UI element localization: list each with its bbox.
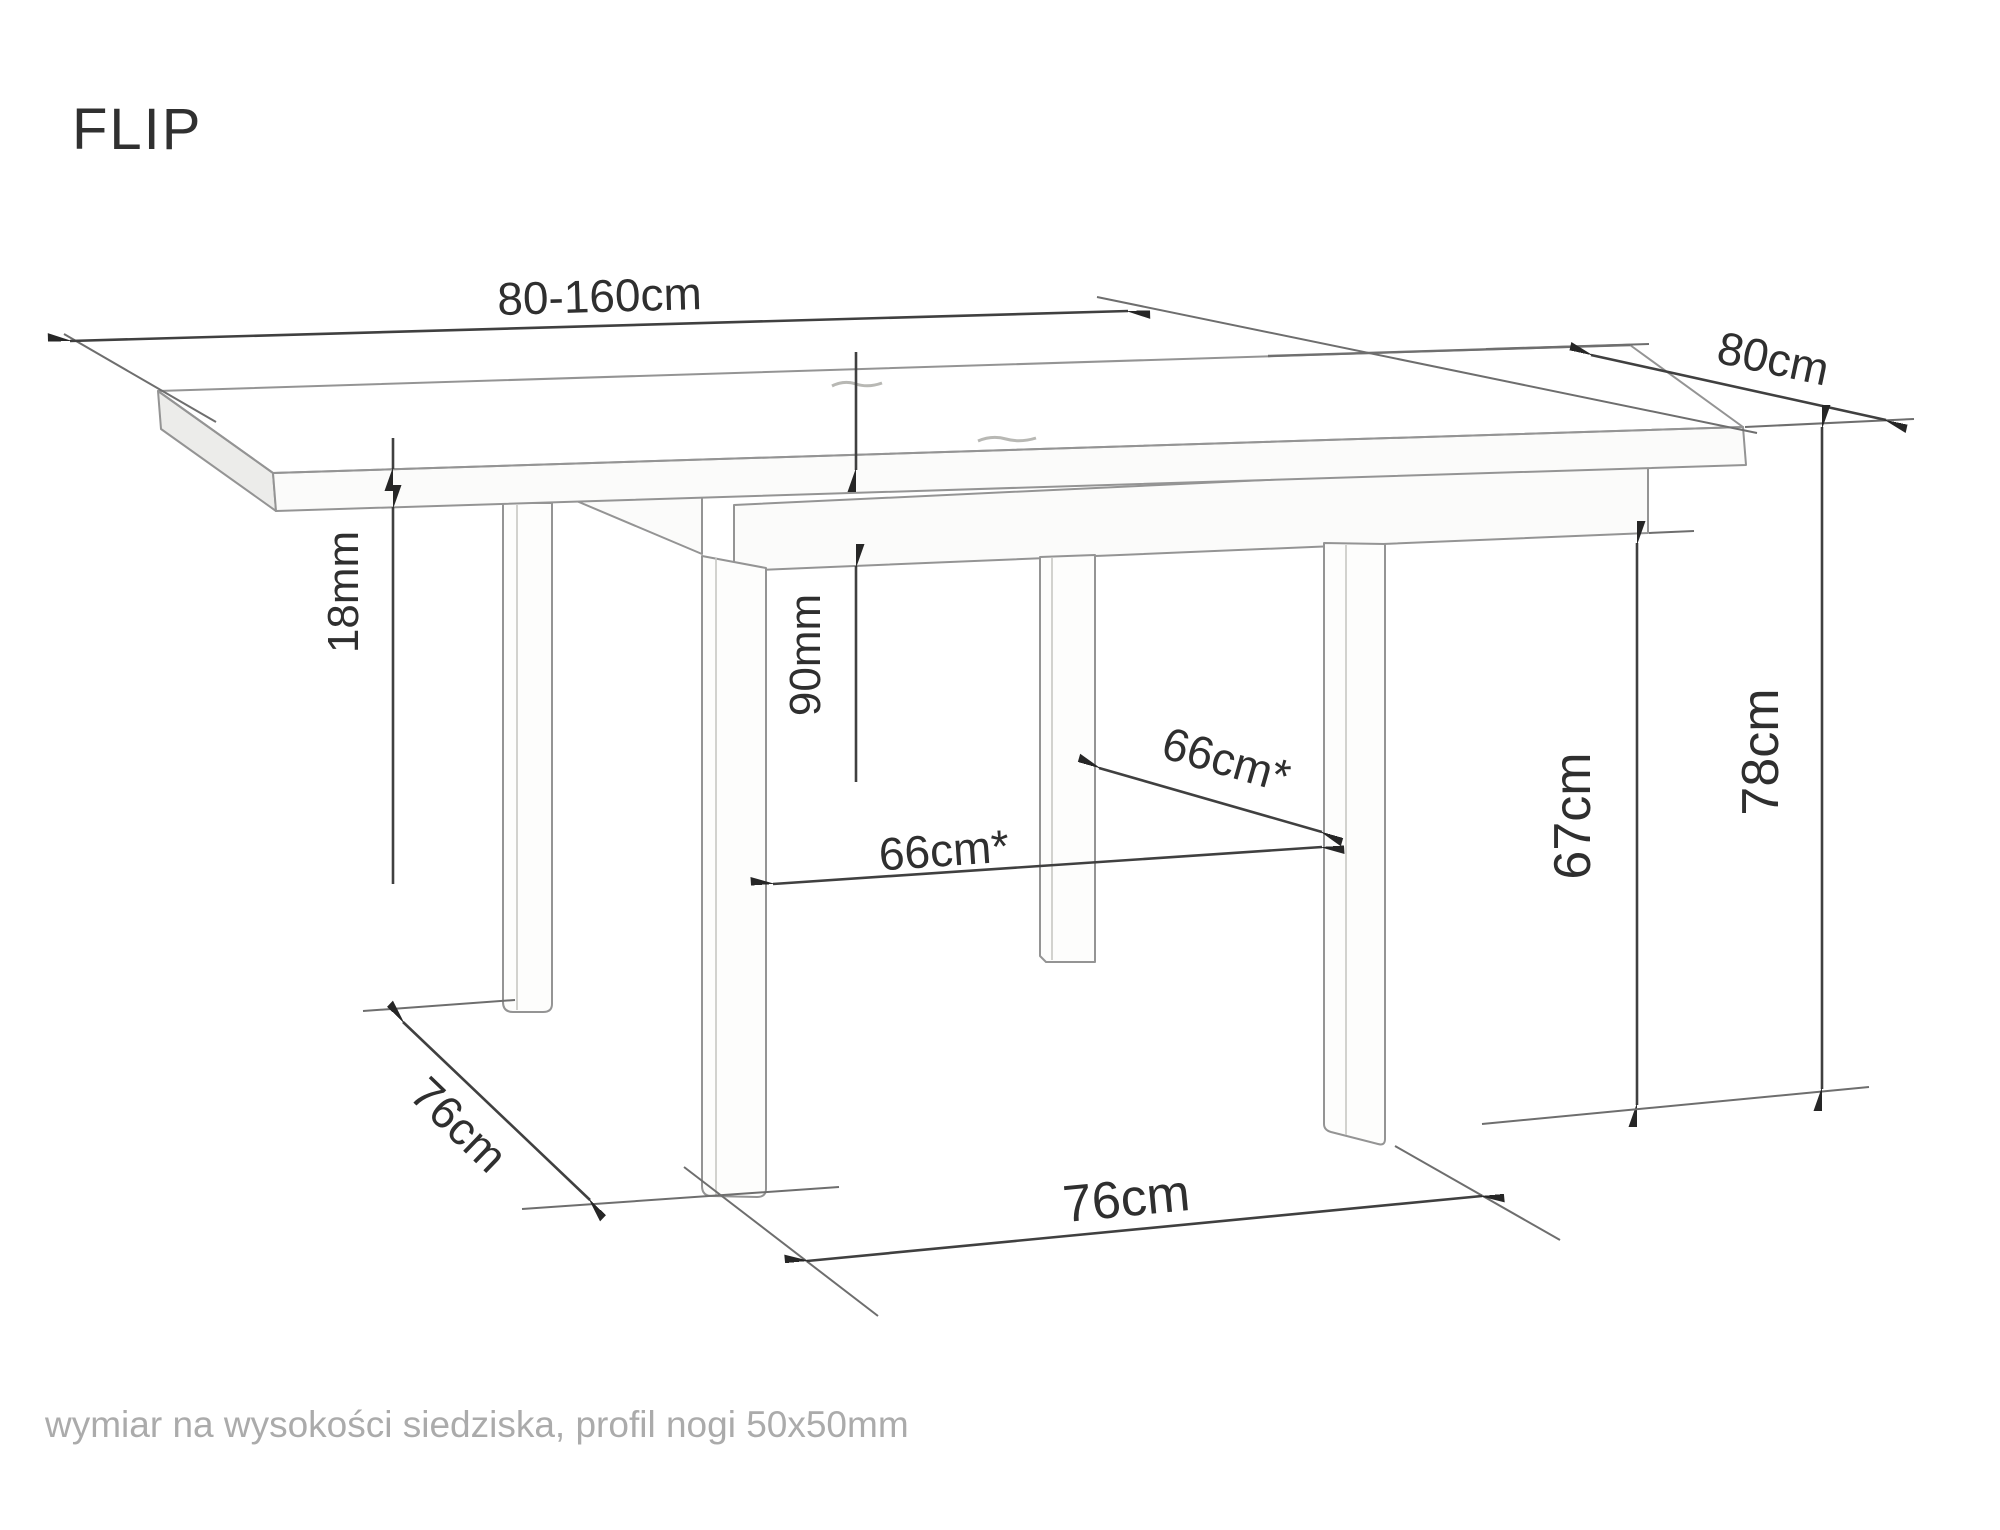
dim-top-thickness-label: 18mm — [319, 531, 368, 653]
leg-back — [1040, 555, 1095, 962]
dim-leg-clearance-front-label: 66cm* — [877, 820, 1011, 881]
dim-apron-height-label: 90mm — [781, 594, 830, 716]
footnote: wymiar na wysokości siedziska, profil no… — [45, 1404, 909, 1446]
leg-right — [1324, 543, 1385, 1144]
dim-depth: 80cm — [1486, 321, 1914, 427]
dim-depth-label: 80cm — [1713, 321, 1834, 395]
dim-leg-spacing-front-label: 76cm — [1060, 1164, 1192, 1234]
dim-leg-spacing-side: 76cm — [363, 1000, 839, 1209]
leg-front — [702, 556, 766, 1197]
dim-seat-height-label: 67cm — [1544, 752, 1602, 879]
table-dimension-diagram: 80-160cm 80cm 18mm 90mm 66cm* — [0, 0, 2000, 1530]
leg-left — [503, 503, 552, 1012]
dim-seat-height: 67cm — [1544, 531, 1694, 1105]
page-root: FLIP — [0, 0, 2000, 1530]
dim-total-height-label: 78cm — [1732, 688, 1790, 815]
seam-mark-right — [978, 437, 1036, 441]
dim-leg-clearance-diagonal: 66cm* — [1099, 717, 1322, 832]
dim-leg-spacing-front: 76cm — [684, 1146, 1560, 1316]
tabletop-left-end-face — [158, 391, 276, 511]
dim-length-label: 80-160cm — [497, 267, 703, 325]
dim-leg-spacing-side-label: 76cm — [401, 1067, 518, 1183]
